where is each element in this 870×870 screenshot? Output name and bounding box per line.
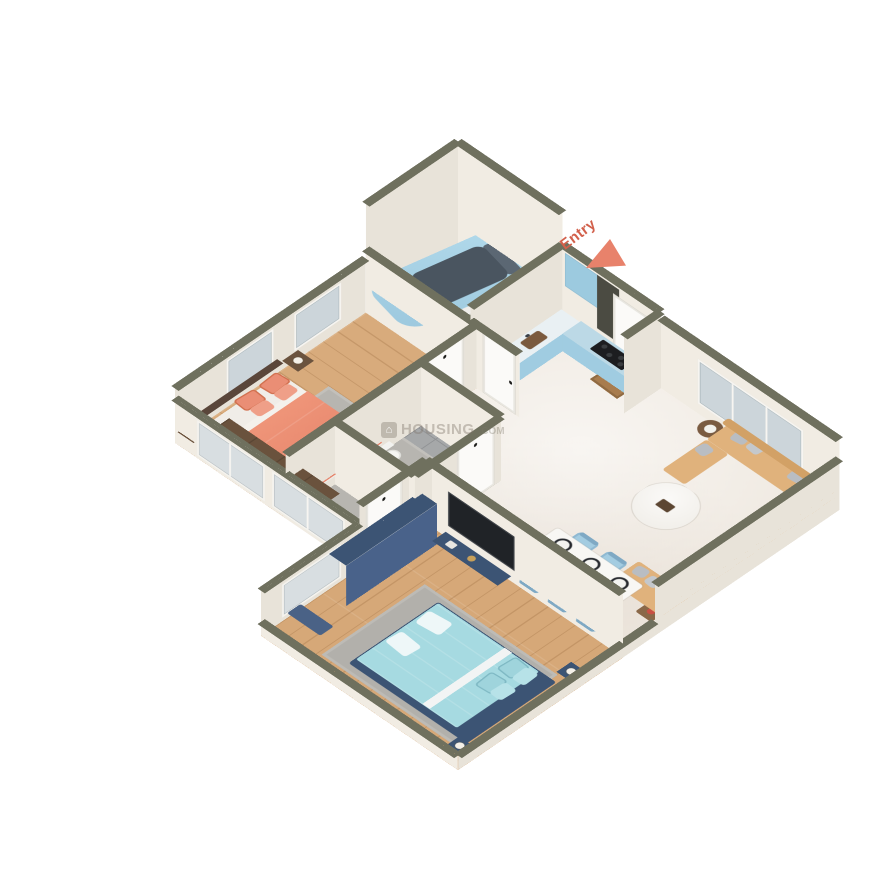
- watermark-brand: HOUSING: [401, 421, 475, 438]
- burner: [600, 344, 609, 350]
- console-decor: [444, 540, 458, 549]
- watermark-suffix: .COM: [479, 426, 505, 437]
- entry-label: Entry: [557, 216, 599, 254]
- entry-arrow-icon: [586, 239, 626, 268]
- floor-plan: [77, 250, 840, 770]
- burner: [605, 352, 614, 358]
- door-handle: [474, 442, 477, 447]
- door-handle: [509, 380, 512, 385]
- table-lamp: [291, 356, 305, 365]
- window-mullion: [229, 444, 231, 477]
- floor-plan-render: Entry ⌂ HOUSING .COM: [0, 0, 870, 870]
- coffee-table-books: [655, 499, 676, 513]
- console-decor: [465, 554, 477, 562]
- door-handle: [382, 496, 385, 501]
- housing-watermark: ⌂ HOUSING .COM: [381, 421, 505, 438]
- house-icon: ⌂: [381, 422, 397, 438]
- door-handle: [443, 354, 446, 359]
- window-mullion: [307, 496, 309, 529]
